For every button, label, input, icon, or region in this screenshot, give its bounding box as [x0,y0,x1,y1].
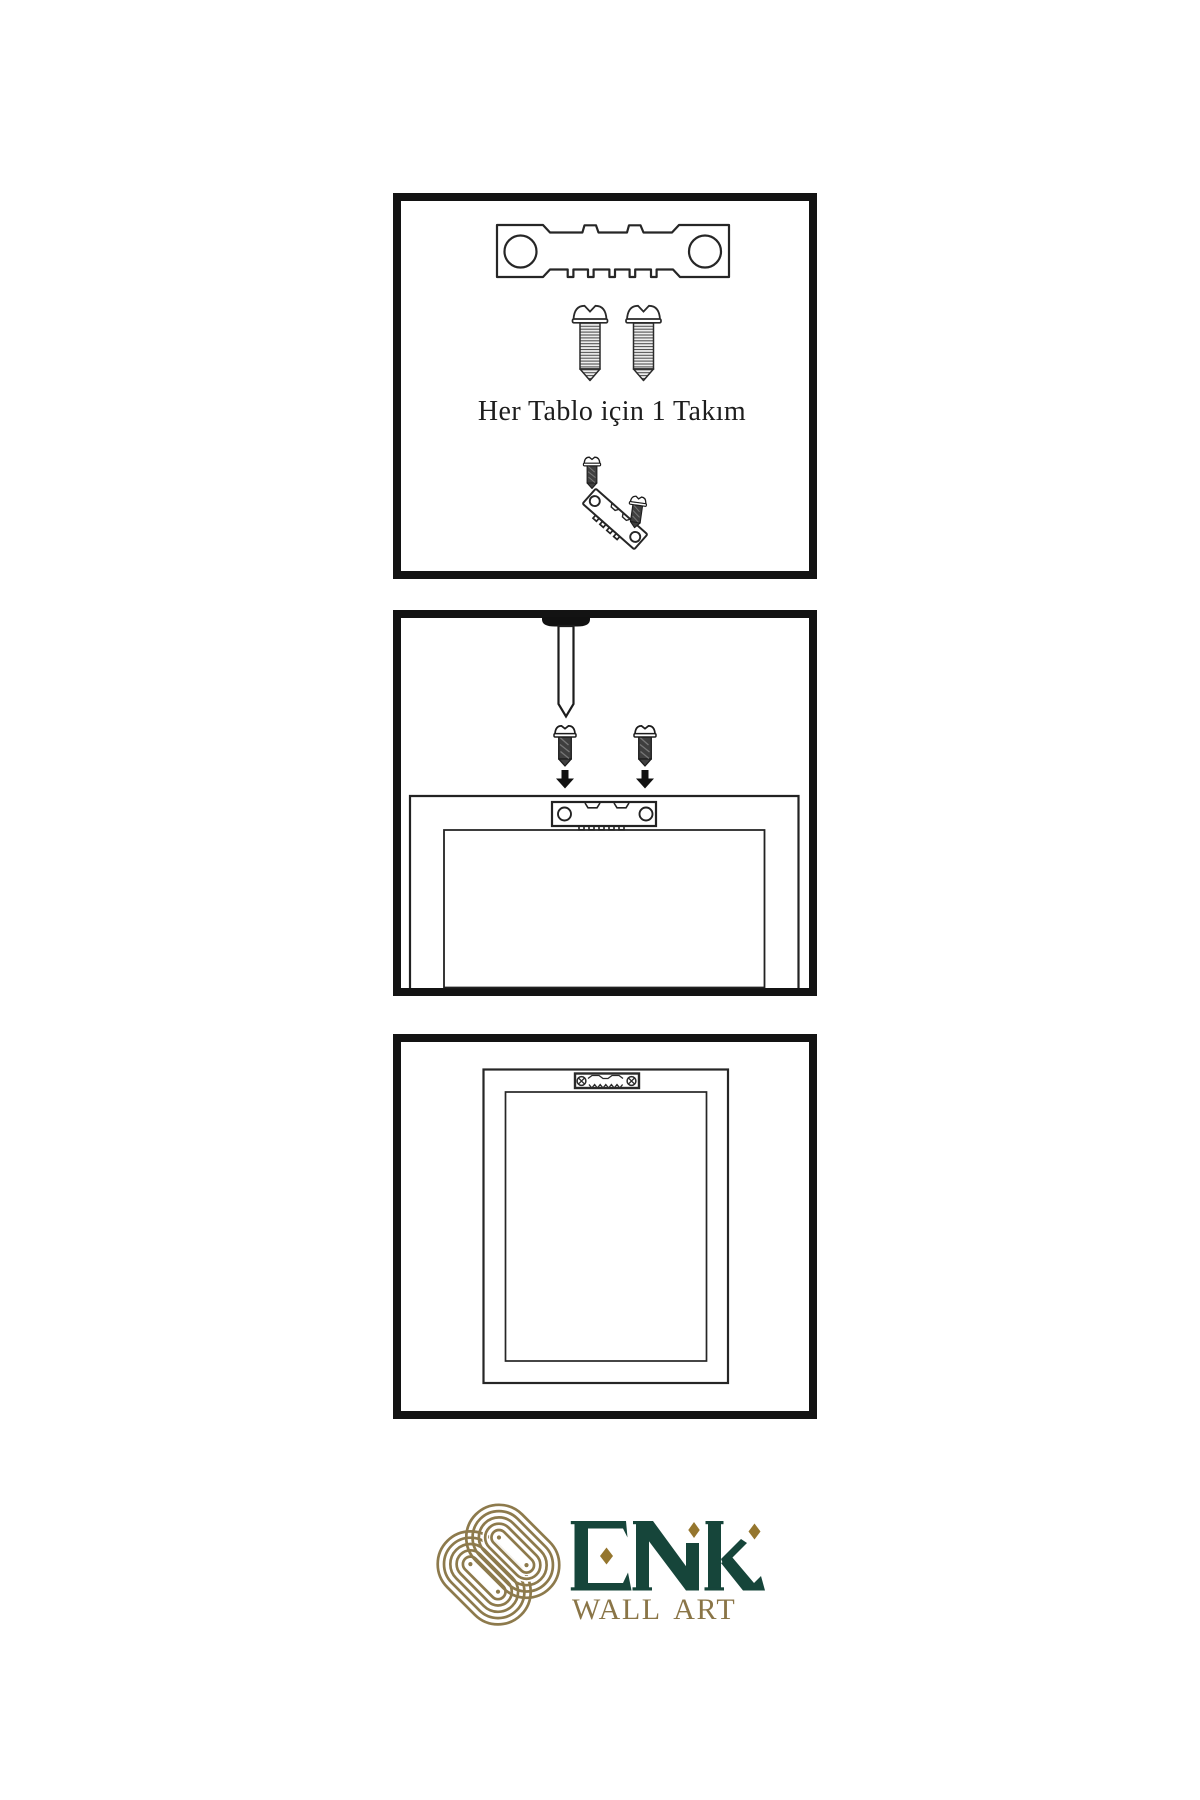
svg-text:Her Tablo için 1 Takım: Her Tablo için 1 Takım [478,396,746,427]
